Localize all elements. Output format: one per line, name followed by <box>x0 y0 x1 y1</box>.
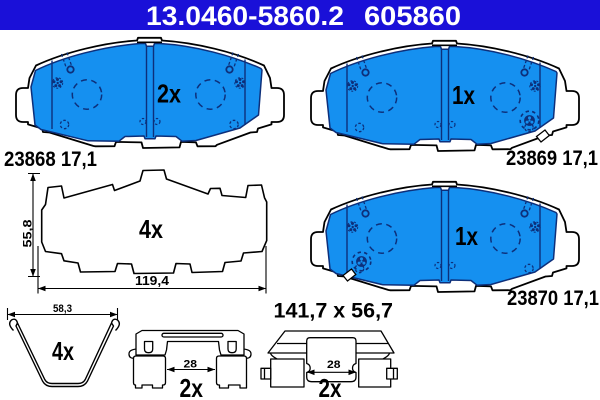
svg-text:4x: 4x <box>52 336 74 366</box>
svg-text:2x: 2x <box>319 373 342 400</box>
svg-text:141,7 x 56,7: 141,7 x 56,7 <box>274 299 394 323</box>
svg-text:23868 17,1: 23868 17,1 <box>4 148 97 171</box>
svg-text:2x: 2x <box>180 373 204 400</box>
svg-text:4x: 4x <box>139 214 163 244</box>
svg-text:23869 17,1: 23869 17,1 <box>506 147 598 170</box>
svg-text:2x: 2x <box>157 79 181 109</box>
svg-text:605860: 605860 <box>364 1 461 31</box>
svg-text:55,8: 55,8 <box>21 219 35 247</box>
svg-text:1x: 1x <box>452 80 475 110</box>
svg-text:13.0460-5860.2: 13.0460-5860.2 <box>146 1 344 31</box>
svg-text:58,3: 58,3 <box>53 303 72 315</box>
svg-text:28: 28 <box>327 359 341 371</box>
svg-text:119,4: 119,4 <box>135 274 169 288</box>
svg-text:23870 17,1: 23870 17,1 <box>507 287 599 310</box>
svg-text:1x: 1x <box>455 221 478 251</box>
svg-text:28: 28 <box>184 359 198 371</box>
